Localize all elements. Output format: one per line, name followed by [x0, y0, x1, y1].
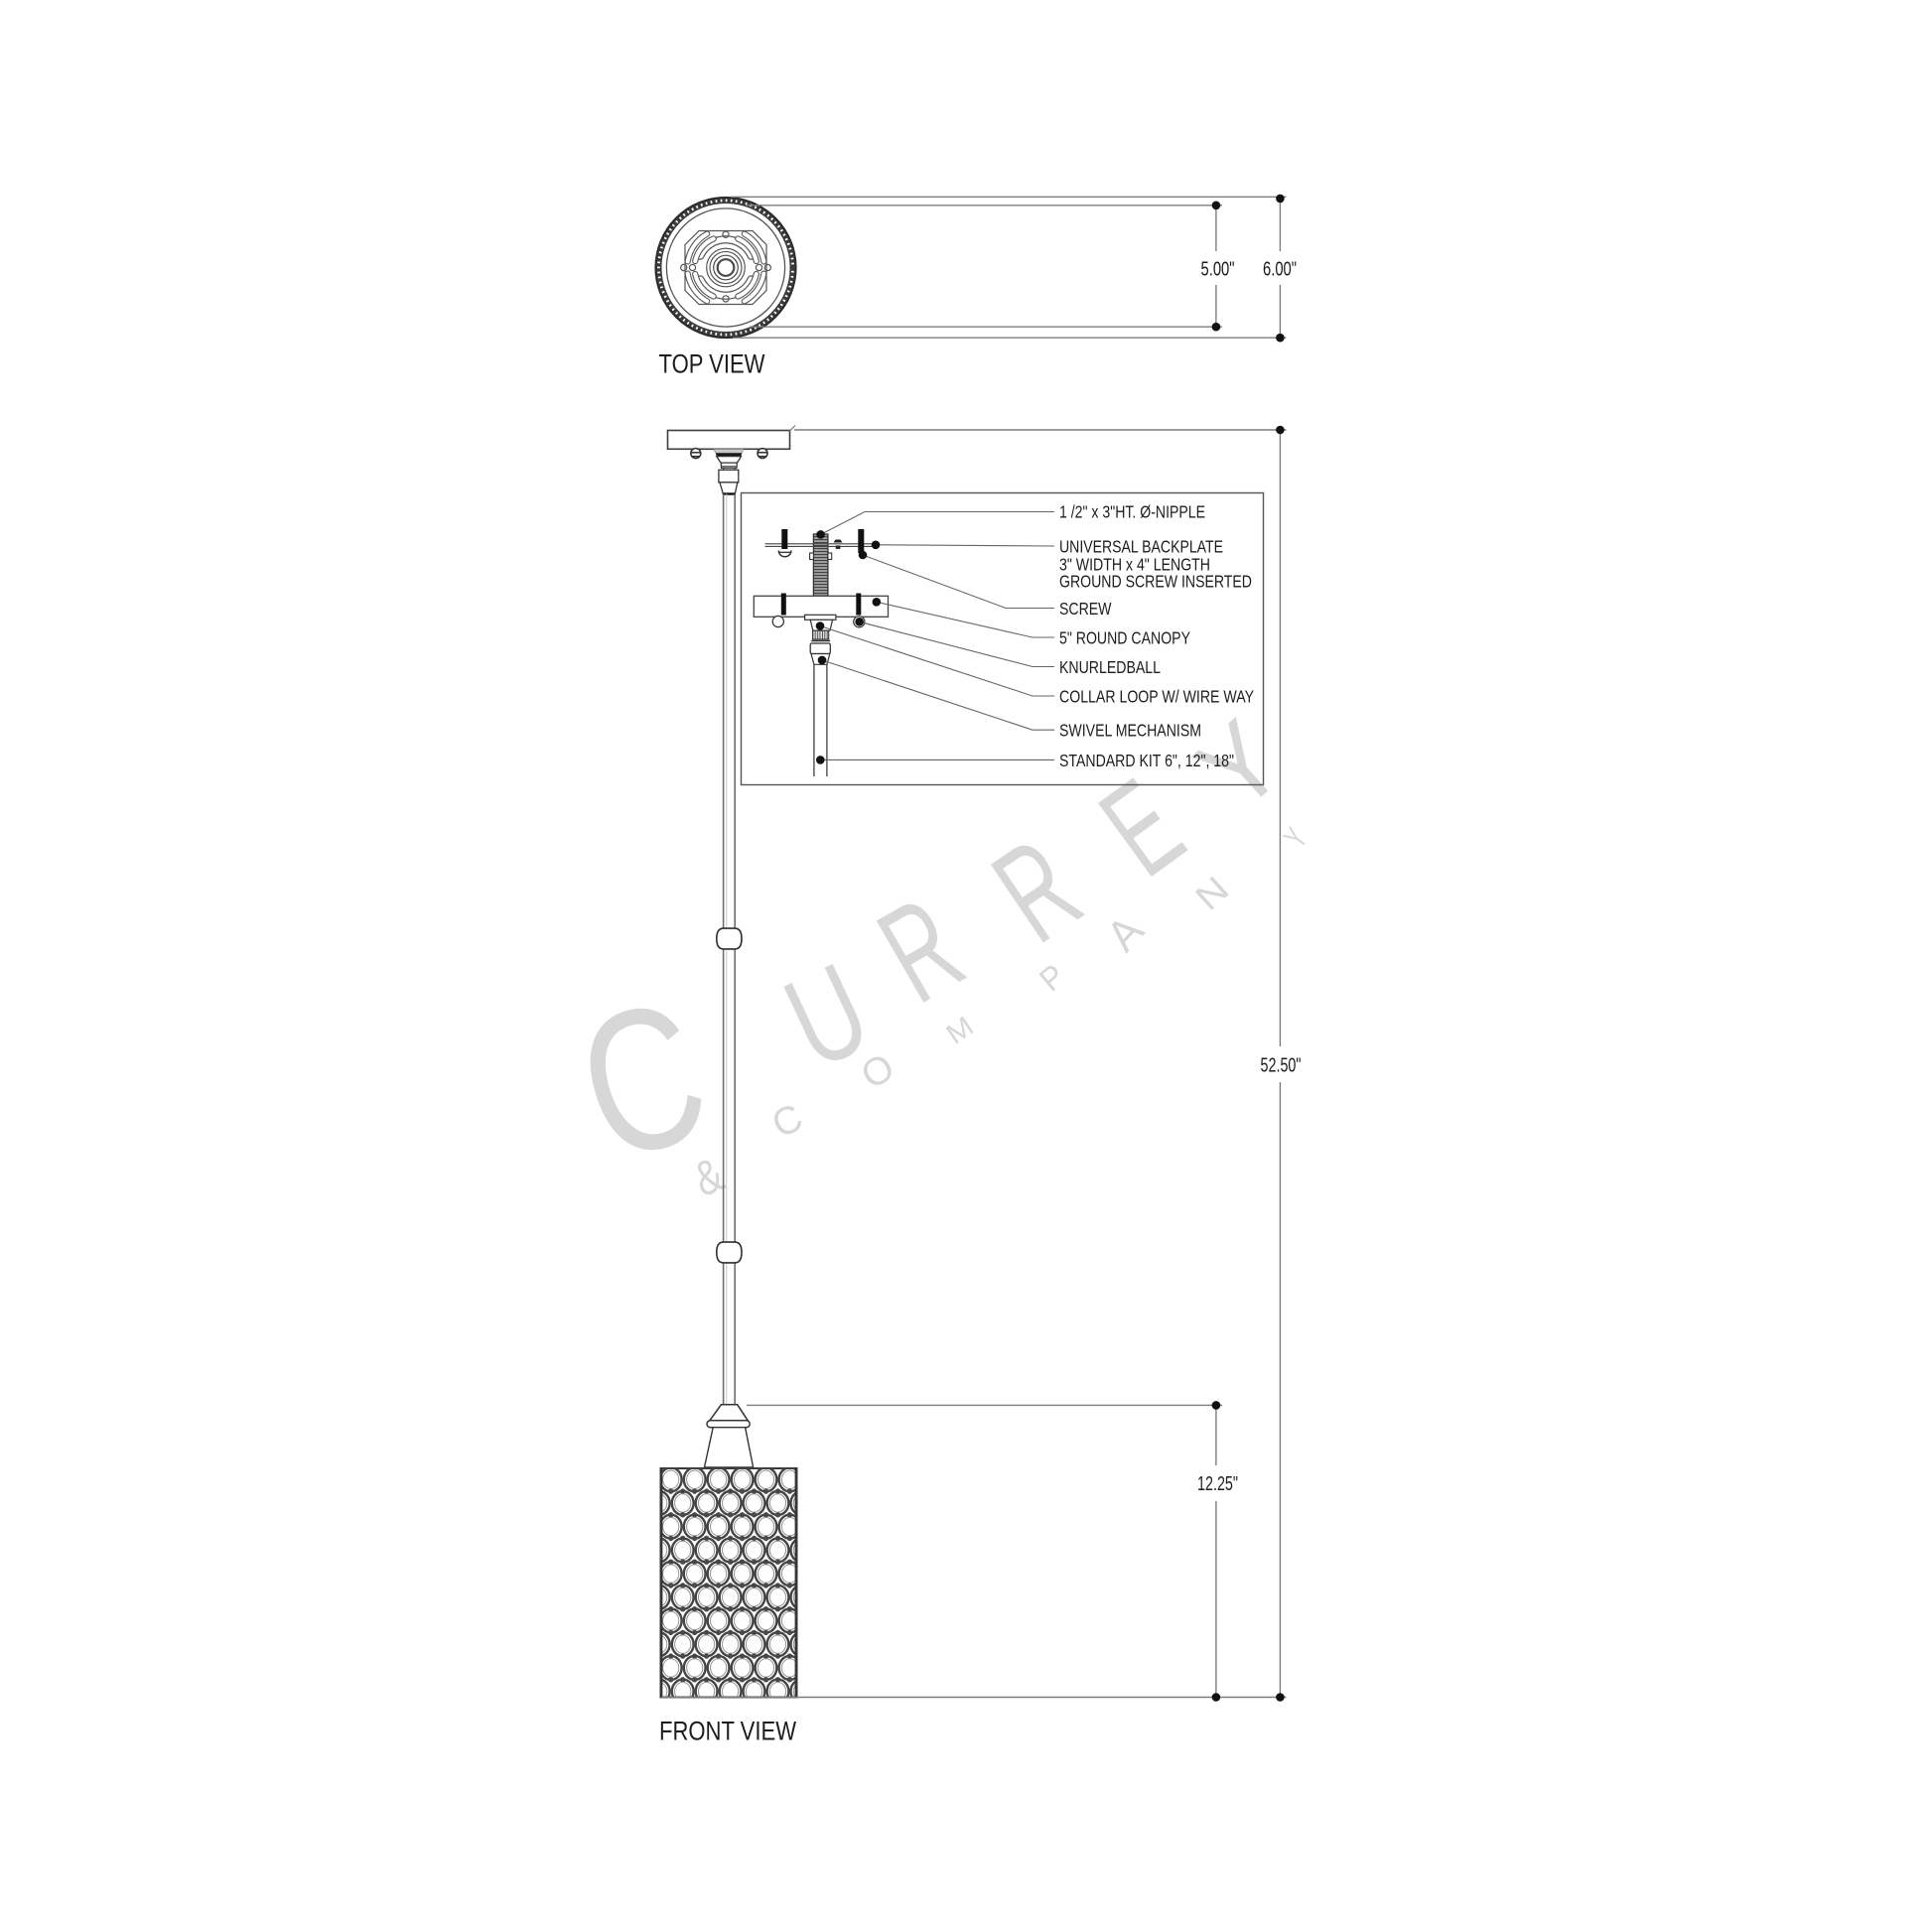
svg-text:KNURLEDBALL: KNURLEDBALL: [1059, 657, 1161, 677]
svg-text:FRONT VIEW: FRONT VIEW: [659, 1717, 796, 1746]
svg-text:TOP VIEW: TOP VIEW: [659, 349, 765, 379]
svg-text:STANDARD KIT 6", 12", 18": STANDARD KIT 6", 12", 18": [1059, 751, 1234, 770]
svg-text:SCREW: SCREW: [1059, 599, 1112, 619]
svg-text:UNIVERSAL BACKPLATE: UNIVERSAL BACKPLATE: [1059, 537, 1223, 557]
svg-text:Y: Y: [1277, 821, 1314, 854]
svg-text:12.25": 12.25": [1197, 1473, 1238, 1495]
svg-text:A: A: [1097, 906, 1153, 961]
svg-text:1 /2" x 3"HT. Ø-NIPPLE: 1 /2" x 3"HT. Ø-NIPPLE: [1059, 502, 1205, 522]
svg-text:C: C: [765, 1096, 809, 1147]
svg-text:GROUND SCREW INSERTED: GROUND SCREW INSERTED: [1059, 572, 1252, 592]
svg-text:SWIVEL MECHANISM: SWIVEL MECHANISM: [1059, 721, 1201, 741]
svg-text:E: E: [1075, 751, 1207, 903]
svg-text:R: R: [969, 810, 1105, 971]
svg-text:6.00": 6.00": [1263, 259, 1297, 281]
svg-text:5" ROUND CANOPY: 5" ROUND CANOPY: [1059, 627, 1190, 647]
svg-text:52.50": 52.50": [1261, 1055, 1302, 1077]
svg-text:5.00": 5.00": [1201, 259, 1235, 281]
svg-text:COLLAR LOOP W/ WIRE WAY: COLLAR LOOP W/ WIRE WAY: [1059, 687, 1254, 707]
svg-text:R: R: [856, 869, 985, 1032]
